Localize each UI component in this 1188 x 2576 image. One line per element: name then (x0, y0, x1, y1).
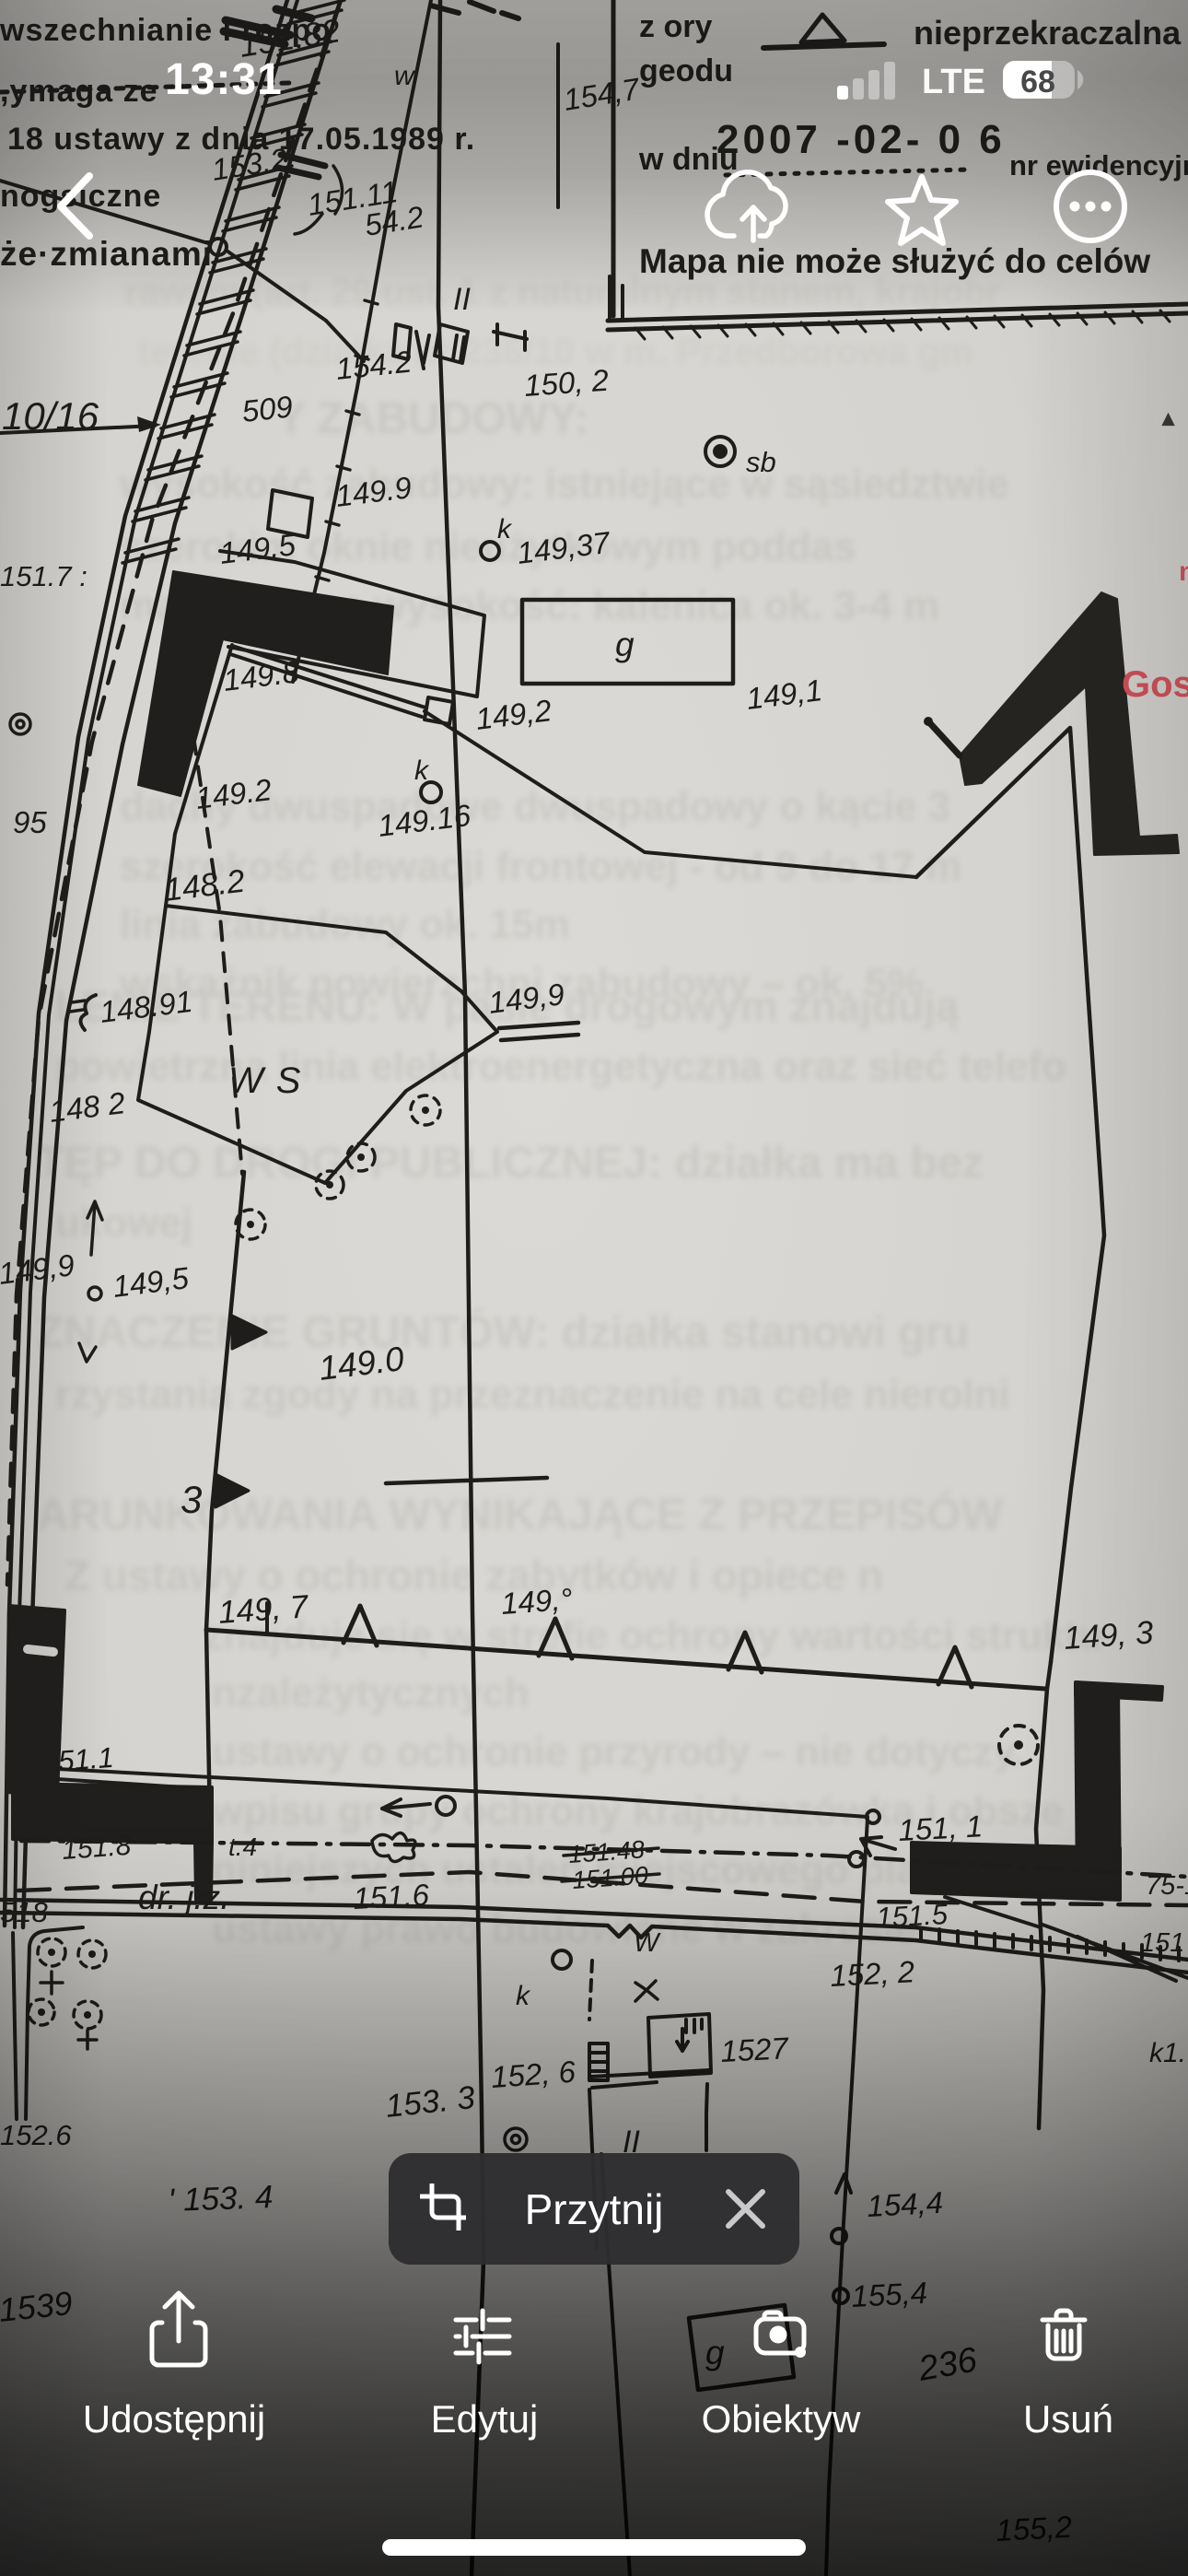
svg-text:Gosp: Gosp (1122, 664, 1188, 705)
svg-text:149, 3: 149, 3 (1063, 1614, 1155, 1657)
svg-text:155,4: 155,4 (850, 2276, 927, 2313)
svg-text:nieprzekraczalna: nieprzekraczalna (914, 14, 1182, 52)
svg-text:k1.: k1. (1149, 2038, 1186, 2068)
svg-text:nzależytycznych: nzależytycznych (212, 1670, 530, 1715)
svg-text:149,°: 149,° (500, 1582, 574, 1621)
svg-text:nogsiczne: nogsiczne (0, 179, 161, 214)
svg-text:g: g (615, 626, 635, 663)
svg-text:powietrzna linia elektroener: powietrzna linia elektroenergetyczna ora… (55, 1044, 1066, 1089)
svg-text:ZNACZENIE GRUNTÓW: działka: ZNACZENIE GRUNTÓW: działka stanowi gru (37, 1306, 970, 1357)
svg-text:TĘP DO DROGI PUBLICZNEJ: d: TĘP DO DROGI PUBLICZNEJ: działka ma bez (37, 1139, 984, 1188)
svg-text:509: 509 (240, 389, 295, 428)
svg-text:ustawy o ochronie przyrody: ustawy o ochronie przyrody – nie dotyczy… (212, 1729, 1024, 1774)
svg-text:W: W (634, 1928, 661, 1958)
svg-text:▴: ▴ (1161, 404, 1175, 431)
svg-text:t.4: t.4 (228, 1832, 257, 1861)
svg-text:10/16: 10/16 (2, 394, 99, 438)
svg-text:152, 6: 152, 6 (490, 2055, 577, 2094)
svg-text:znajduje się w strefie och: znajduje się w strefie ochrony wartości … (203, 1613, 1103, 1658)
svg-text:151.6: 151.6 (352, 1878, 430, 1915)
svg-text:k: k (497, 514, 513, 544)
svg-text:75-1: 75-1 (1146, 1871, 1188, 1901)
svg-text:szerokość elewacji frontowej: szerokość elewacji frontowej - od 9 do 1… (120, 844, 961, 889)
svg-text:152, 2: 152, 2 (829, 1954, 915, 1993)
svg-text:149, 7: 149, 7 (217, 1588, 310, 1631)
svg-text:155,2: 155,2 (995, 2510, 1072, 2547)
svg-text:w: w (394, 61, 416, 91)
svg-text:ukowej: ukowej (55, 1200, 192, 1246)
svg-text:wysokość zabudowy: istniejąc: wysokość zabudowy: istniejące w sąsiedzt… (119, 462, 1009, 507)
svg-text:Mapa nie może służyć do celów: Mapa nie może służyć do celów (639, 242, 1150, 280)
svg-text:rzystania zgody na przeznac: rzystania zgody na przeznaczenie na cele… (55, 1372, 1010, 1417)
svg-text:150, 2: 150, 2 (523, 363, 610, 403)
svg-text:,ymaga ze: ,ymaga ze (0, 74, 158, 109)
svg-text:518: 518 (0, 1896, 48, 1928)
svg-text:WS: WS (228, 1060, 313, 1101)
svg-text:95: 95 (13, 805, 47, 839)
svg-text:151.5: 151.5 (876, 1898, 949, 1934)
svg-text:154,4: 154,4 (866, 2185, 943, 2223)
svg-text:151.8: 151.8 (61, 1831, 133, 1866)
svg-text:n: n (1179, 556, 1188, 587)
svg-text:II: II (623, 2125, 640, 2160)
svg-text:że·zmianami: że·zmianami (0, 235, 213, 273)
svg-text:151.00: 151.00 (571, 1861, 648, 1894)
svg-text:2007 -02- 0 6: 2007 -02- 0 6 (716, 117, 1006, 162)
svg-text:z ory: z ory (639, 9, 712, 44)
svg-text:1539: 1539 (0, 2284, 74, 2329)
svg-text:Y ZABUDOWY:: Y ZABUDOWY: (276, 394, 589, 443)
svg-text:151.7 :: 151.7 : (0, 560, 87, 592)
svg-text:152.6: 152.6 (0, 2119, 72, 2151)
svg-text:k: k (516, 1981, 531, 2011)
svg-text:51.1: 51.1 (57, 1741, 115, 1777)
svg-text:g: g (705, 2334, 725, 2371)
svg-text:nr ewidencyjn: nr ewidencyjn (1009, 149, 1188, 181)
svg-text:3: 3 (181, 1478, 202, 1521)
svg-text:k: k (414, 755, 430, 786)
svg-text:dr. j.z.: dr. j.z. (138, 1879, 229, 1916)
svg-text:geodu: geodu (639, 53, 733, 88)
svg-text:sb: sb (746, 446, 776, 478)
svg-text:' 153. 4: ' 153. 4 (168, 2179, 274, 2219)
svg-text:151, 1: 151, 1 (897, 1809, 984, 1847)
svg-text:151: 151 (1140, 1928, 1184, 1958)
svg-text:1527: 1527 (719, 2031, 790, 2068)
svg-text:II: II (453, 282, 471, 317)
